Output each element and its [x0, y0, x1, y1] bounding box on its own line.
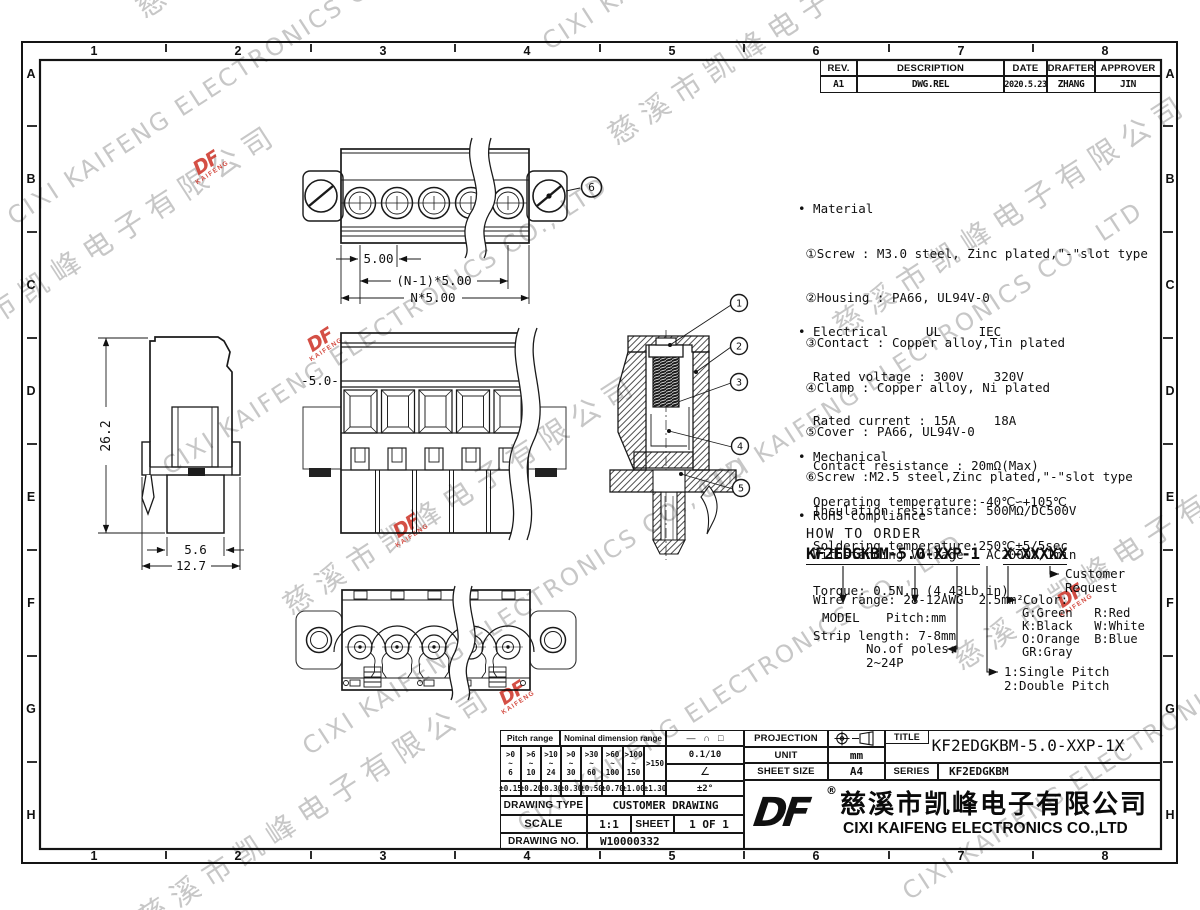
- grid-row-label: G: [1161, 702, 1179, 716]
- tolerance-cell: ±0.30: [561, 781, 581, 796]
- drawing-title: KF2EDGKBM-5.0-XXP-1X: [895, 736, 1161, 755]
- drawing-no-label: DRAWING NO.: [500, 833, 587, 849]
- grid-col-label: 5: [663, 44, 681, 58]
- grid-col-label: 8: [1096, 44, 1114, 58]
- grid-col-label: 4: [518, 44, 536, 58]
- nominal-range-cell: >60 ~ 100: [602, 746, 623, 781]
- order-color-row: O:Orange B:Blue: [1022, 632, 1138, 646]
- dim-pitch-n: N*5.00: [410, 290, 455, 305]
- scale-label: SCALE: [500, 815, 587, 833]
- view-section: [610, 295, 750, 561]
- first-angle-projection-icon: [832, 731, 882, 746]
- nominal-range-cell: >100 ~ 150: [623, 746, 644, 781]
- tolerance-cell: ±1.00: [623, 781, 644, 796]
- grid-col-label: 3: [374, 849, 392, 863]
- grid-row-label: B: [1161, 172, 1179, 186]
- grid-col-label: 3: [374, 44, 392, 58]
- order-pitch-type-1: 1:Single Pitch: [1004, 664, 1109, 679]
- company-name-en: CIXI KAIFENG ELECTRONICS CO.,LTD: [843, 820, 1128, 838]
- dim-front-pitch: -5.0-: [301, 373, 339, 388]
- square-icon: □: [718, 733, 723, 743]
- grid-row-label: G: [22, 702, 40, 716]
- dim-side-view: [98, 338, 244, 570]
- flatness-tolerance: 0.1/10: [666, 746, 744, 764]
- drawing-type-value: CUSTOMER DRAWING: [587, 796, 744, 815]
- pitch-range-header: Pitch range: [500, 730, 560, 746]
- arc-icon: ∩: [704, 733, 710, 743]
- angle-tolerance: ±2°: [666, 781, 744, 796]
- order-color-row: G:Green R:Red: [1022, 606, 1130, 620]
- grid-row-label: C: [22, 278, 40, 292]
- dim-depth: 12.7: [176, 558, 206, 573]
- order-model-label: MODEL: [822, 610, 860, 625]
- order-poles-range: 2~24P: [866, 655, 904, 670]
- grid-row-label: A: [22, 67, 40, 81]
- drawing-type-label: DRAWING TYPE: [500, 796, 587, 815]
- callout-5-number: 5: [738, 484, 744, 495]
- order-color-row: GR:Gray: [1022, 645, 1073, 659]
- grid-row-label: H: [1161, 808, 1179, 822]
- series-label: SERIES: [885, 763, 938, 780]
- callout-1-number: 1: [736, 299, 742, 310]
- nominal-range-cell: >0 ~ 30: [561, 746, 581, 781]
- rev-drafter: ZHANG: [1047, 76, 1095, 93]
- grid-col-label: 1: [85, 849, 103, 863]
- tolerance-cell: ±0.20: [521, 781, 541, 796]
- view-side: [142, 337, 240, 533]
- angle-symbol: ∠: [666, 764, 744, 781]
- tolerance-cell: ±0.30: [541, 781, 561, 796]
- callout-2-number: 2: [736, 342, 742, 353]
- view-top-plan: [303, 138, 602, 258]
- tolerance-symbols-header: — ∩ □: [666, 730, 744, 746]
- registered-mark: ®: [826, 784, 837, 797]
- series-value: KF2EDGKBM: [938, 763, 1161, 780]
- rohs-note: • RoHS compliance: [798, 509, 926, 524]
- grid-col-label: 1: [85, 44, 103, 58]
- view-front: [303, 328, 566, 540]
- rev-header-drafter: DRAFTER: [1047, 60, 1095, 76]
- grid-row-label: E: [1161, 490, 1179, 504]
- grid-col-label: 2: [229, 44, 247, 58]
- grid-row-label: D: [22, 384, 40, 398]
- order-part-number-suffix: X-XXXXX: [1003, 544, 1067, 565]
- sheet-size-value: A4: [828, 763, 885, 780]
- order-poles-label: No.of poles:: [866, 641, 956, 656]
- sheet-value: 1 OF 1: [674, 815, 744, 833]
- drawing-no-value: W10000332: [587, 833, 744, 849]
- grid-row-label: E: [22, 490, 40, 504]
- rev-approver: JIN: [1095, 76, 1161, 93]
- electrical-line: Rated voltage : 300V 320V: [798, 370, 1076, 385]
- electrical-title: • Electrical UL IEC: [798, 325, 1076, 340]
- dim-height: 26.2: [99, 420, 114, 451]
- company-name-cn: 慈溪市凯峰电子有限公司: [840, 784, 1148, 821]
- order-customer-2: Request: [1065, 580, 1118, 595]
- grid-row-label: B: [22, 172, 40, 186]
- callout-6-number: 6: [588, 181, 595, 194]
- company-logo: DF: [751, 794, 809, 832]
- pitch-range-cell: >6 ~ 10: [521, 746, 541, 781]
- material-line: ①Screw : M3.0 steel, Zinc plated,"-"slot…: [798, 247, 1148, 262]
- dim-foot-width: 5.6: [184, 542, 207, 557]
- nominal-range-cell: >30 ~ 60: [581, 746, 602, 781]
- order-customer-1: Customer: [1065, 566, 1125, 581]
- order-part-number-main: KF2EDGKBM-5.0-XXP-1: [806, 544, 980, 565]
- rev-desc: DWG.REL: [857, 76, 1004, 93]
- rev-date: 2020.5.23: [1004, 76, 1047, 93]
- drawing-sheet: 6 5.00 (N-1)*5.00 N*5.00: [0, 0, 1200, 910]
- projection-symbol: [828, 730, 885, 747]
- order-color-row: K:Black W:White: [1022, 619, 1145, 633]
- grid-col-label: 5: [663, 849, 681, 863]
- straightness-icon: —: [687, 733, 696, 743]
- rev-value: A1: [820, 76, 857, 93]
- mechanical-title: • Mechanical: [798, 450, 1068, 465]
- order-pitch-type-2: 2:Double Pitch: [1004, 678, 1109, 693]
- rev-header-approver: APPROVER: [1095, 60, 1161, 76]
- nominal-range-cell: >150: [644, 746, 666, 781]
- grid-col-label: 8: [1096, 849, 1114, 863]
- material-title: • Material: [798, 202, 1148, 217]
- grid-row-label: H: [22, 808, 40, 822]
- tolerance-cell: ±0.15: [500, 781, 521, 796]
- dim-pitch: 5.00: [363, 251, 393, 266]
- tolerance-cell: ±0.50: [581, 781, 602, 796]
- unit-value: mm: [828, 747, 885, 763]
- sheet-label: SHEET: [631, 815, 674, 833]
- grid-col-label: 6: [807, 44, 825, 58]
- order-title: HOW TO ORDER: [806, 526, 922, 542]
- grid-col-label: 2: [229, 849, 247, 863]
- scale-value: 1:1: [587, 815, 631, 833]
- nominal-range-header: Nominal dimension range: [560, 730, 666, 746]
- grid-row-label: F: [1161, 596, 1179, 610]
- view-bottom: [296, 586, 576, 700]
- grid-row-label: D: [1161, 384, 1179, 398]
- grid-col-label: 4: [518, 849, 536, 863]
- projection-label: PROJECTION: [744, 730, 828, 747]
- rev-header-description: DESCRIPTION: [857, 60, 1004, 76]
- callout-4-number: 4: [737, 442, 743, 453]
- callout-3-number: 3: [736, 378, 742, 389]
- grid-col-label: 7: [952, 44, 970, 58]
- dim-pitch-n1: (N-1)*5.00: [396, 273, 471, 288]
- grid-row-label: F: [22, 596, 40, 610]
- tolerance-cell: ±1.30: [644, 781, 666, 796]
- pitch-range-cell: >0 ~ 6: [500, 746, 521, 781]
- order-pitch-label: Pitch:mm: [886, 610, 946, 625]
- grid-row-label: C: [1161, 278, 1179, 292]
- sheet-size-label: SHEET SIZE: [744, 763, 828, 780]
- rev-header-date: DATE: [1004, 60, 1047, 76]
- grid-col-label: 7: [952, 849, 970, 863]
- order-color-title: Color:: [1023, 592, 1068, 607]
- grid-row-label: A: [1161, 67, 1179, 81]
- grid-col-label: 6: [807, 849, 825, 863]
- unit-label: UNIT: [744, 747, 828, 763]
- tolerance-cell: ±0.70: [602, 781, 623, 796]
- rev-header-rev: REV.: [820, 60, 857, 76]
- pitch-range-cell: >10 ~ 24: [541, 746, 561, 781]
